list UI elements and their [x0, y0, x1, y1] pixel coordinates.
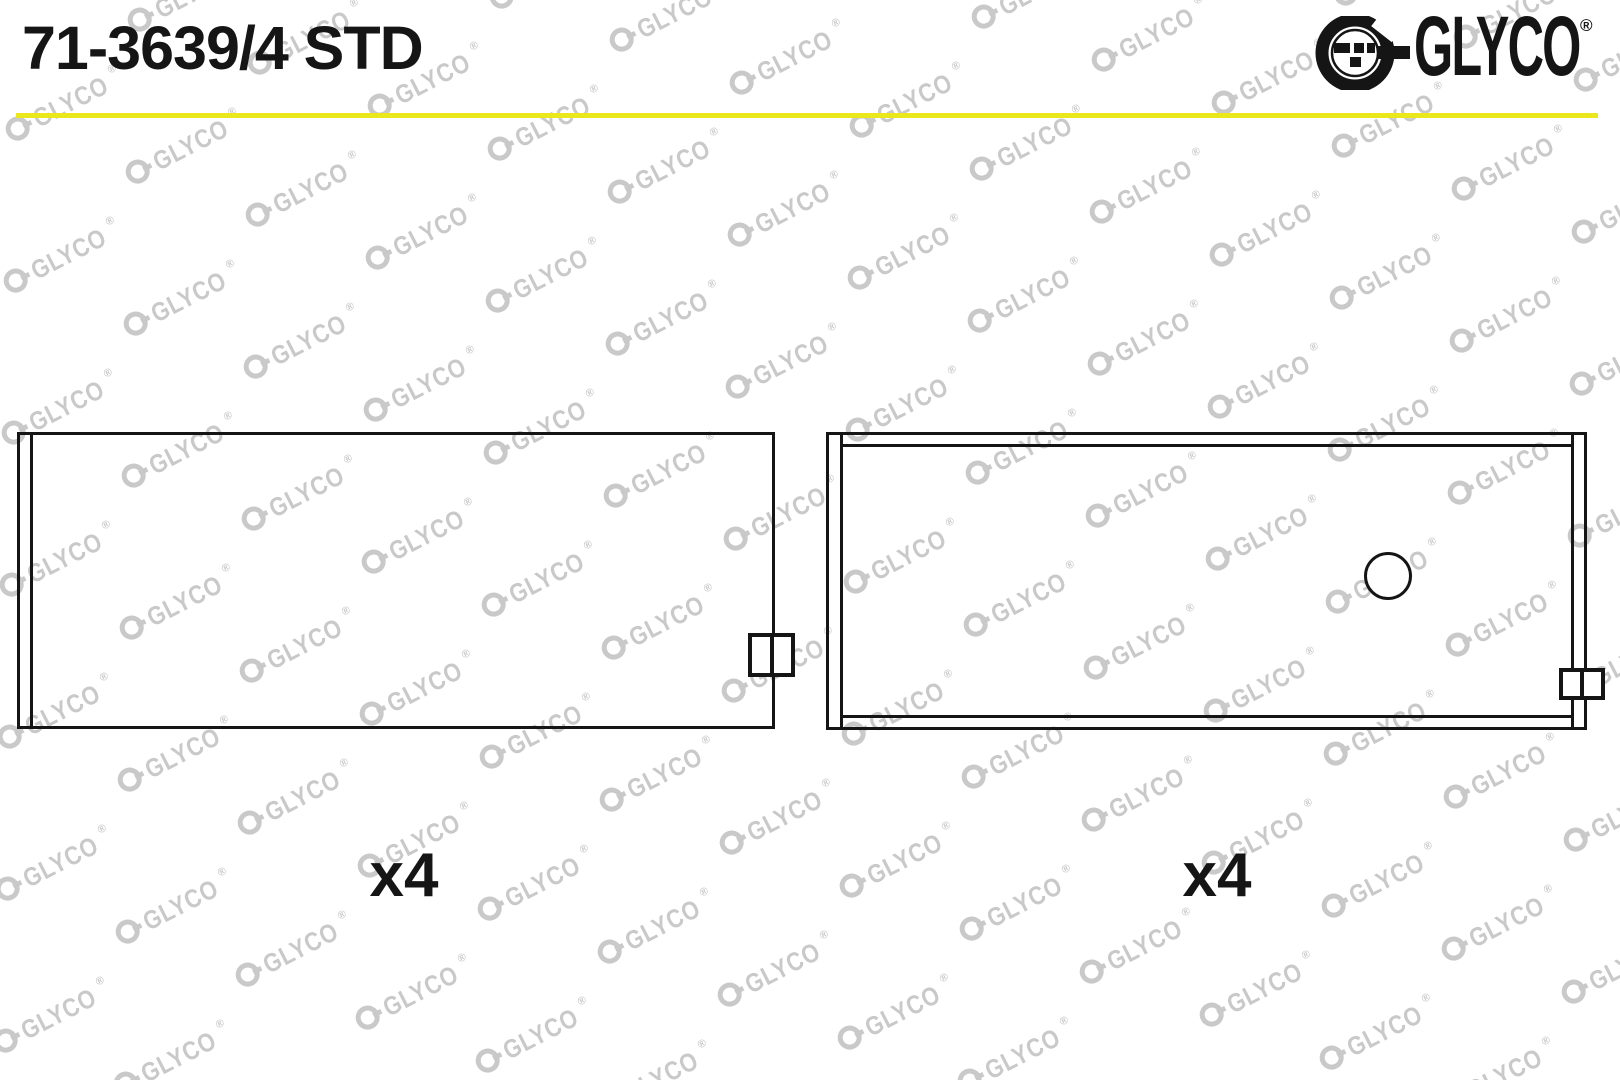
watermark: GLYCO®: [1559, 776, 1620, 857]
glyco-ring-icon: [0, 1024, 22, 1056]
glyco-ring-icon: [606, 23, 638, 55]
glyco-ring-icon: [966, 152, 998, 184]
watermark: GLYCO®: [0, 326, 2, 407]
shell-outline: [17, 432, 775, 729]
glyco-ring-icon: [476, 740, 508, 772]
watermark: GLYCO®: [1203, 343, 1328, 424]
glyco-ring-icon: [486, 0, 518, 13]
watermark: GLYCO®: [845, 62, 970, 143]
glyco-ring-icon: [1084, 347, 1116, 379]
watermark: GLYCO®: [1557, 928, 1620, 1009]
watermark: GLYCO®: [233, 759, 358, 840]
glyco-ring-icon: [0, 872, 24, 904]
glyco-ring-icon: [122, 155, 154, 187]
watermark: GLYCO®: [1447, 125, 1572, 206]
watermark: GLYCO®: [835, 822, 960, 903]
watermark: GLYCO®: [1195, 951, 1320, 1032]
watermark: GLYCO®: [0, 22, 6, 103]
watermark: GLYCO®: [595, 736, 720, 817]
glyco-ring-icon: [1316, 1041, 1348, 1073]
quantity-label: x4: [294, 845, 514, 907]
lug-divider-line: [1580, 672, 1584, 696]
glyco-ring-icon: [1328, 129, 1360, 161]
glyco-ring-icon: [726, 66, 758, 98]
part-number: 71-3639/4 STD: [22, 18, 423, 79]
watermark: GLYCO®: [121, 108, 246, 189]
watermark: GLYCO®: [1327, 82, 1452, 163]
watermark: GLYCO®: [955, 865, 1080, 946]
watermark: GLYCO®: [0, 825, 116, 906]
glyco-ring-icon: [1086, 195, 1118, 227]
glyco-ring-icon: [1440, 780, 1472, 812]
glyco-ring-icon: [1204, 390, 1236, 422]
watermark: GLYCO®: [725, 19, 850, 100]
glyco-ring-icon: [120, 307, 152, 339]
watermark: GLYCO®: [241, 151, 366, 232]
glyco-ring-icon: [1568, 215, 1600, 247]
glyco-ring-icon: [722, 370, 754, 402]
glyco-ring-icon: [362, 241, 394, 273]
glyco-ring-icon: [1558, 975, 1590, 1007]
glyco-ring-icon: [112, 915, 144, 947]
glyco-ring-icon: [232, 958, 264, 990]
glyco-ring-icon: [1566, 367, 1598, 399]
glyco-ring-icon: [1206, 238, 1238, 270]
shell-edge-line: [30, 435, 33, 726]
watermark: GLYCO®: [601, 280, 726, 361]
glyco-ring-icon: [1314, 16, 1410, 90]
watermark: GLYCO®: [0, 217, 124, 298]
glyco-ring-icon: [594, 935, 626, 967]
glyco-ring-icon: [242, 198, 274, 230]
watermark: GLYCO®: [1075, 908, 1200, 989]
watermark: GLYCO®: [485, 0, 610, 14]
glyco-ring-icon: [1330, 0, 1362, 10]
glyco-ring-icon: [1446, 324, 1478, 356]
glyco-ring-icon: [0, 264, 32, 296]
oil-hole: [1364, 552, 1412, 600]
glyco-ring-icon: [234, 806, 266, 838]
glyco-ring-icon: [844, 261, 876, 293]
glyco-ring-icon: [1560, 823, 1592, 855]
glyco-ring-icon: [472, 1044, 504, 1076]
shell-outline: [826, 432, 1587, 730]
watermark: GLYCO®: [963, 257, 1088, 338]
lug-divider-line: [770, 637, 774, 673]
glyco-ring-icon: [604, 175, 636, 207]
glyco-ring-icon: [482, 284, 514, 316]
watermark: GLYCO®: [603, 128, 728, 209]
watermark: GLYCO®: [1435, 1037, 1560, 1080]
glyco-ring-icon: [956, 912, 988, 944]
locating-lug: [748, 633, 795, 677]
watermark: GLYCO®: [833, 974, 958, 1055]
glyco-ring-icon: [110, 1067, 142, 1080]
watermark: GLYCO®: [591, 1040, 716, 1080]
shell-wall-line-bottom: [843, 715, 1571, 718]
glyco-ring-icon: [834, 1021, 866, 1053]
watermark: GLYCO®: [1085, 148, 1210, 229]
watermark: GLYCO®: [481, 237, 606, 318]
watermark: GLYCO®: [967, 0, 1092, 34]
watermark: GLYCO®: [593, 888, 718, 969]
watermark: GLYCO®: [1087, 0, 1212, 77]
glyco-ring-icon: [1196, 998, 1228, 1030]
glyco-ring-icon: [1448, 172, 1480, 204]
watermark: GLYCO®: [1565, 320, 1620, 401]
glyco-ring-icon: [968, 0, 1000, 32]
quantity-label: x4: [1107, 845, 1327, 907]
watermark: GLYCO®: [111, 868, 236, 949]
catalog-page: GLYCO®GLYCO®GLYCO®GLYCO®GLYCO®GLYCO®GLYC…: [0, 0, 1620, 1080]
watermark: GLYCO®: [1567, 168, 1620, 249]
glyco-ring-icon: [484, 132, 516, 164]
watermark: GLYCO®: [605, 0, 730, 57]
glyco-ring-icon: [958, 760, 990, 792]
locating-lug: [1559, 668, 1605, 700]
watermark: GLYCO®: [119, 260, 244, 341]
watermark: GLYCO®: [231, 911, 356, 992]
watermark: GLYCO®: [1077, 756, 1202, 837]
watermark: GLYCO®: [0, 174, 4, 255]
watermark: GLYCO®: [1083, 300, 1208, 381]
watermark: GLYCO®: [1445, 277, 1570, 358]
watermark: GLYCO®: [843, 214, 968, 295]
watermark: GLYCO®: [721, 323, 846, 404]
watermark: GLYCO®: [713, 931, 838, 1012]
glyco-ring-icon: [240, 350, 272, 382]
glyco-ring-icon: [836, 869, 868, 901]
watermark: GLYCO®: [109, 1020, 234, 1080]
glyco-ring-icon: [596, 783, 628, 815]
watermark: GLYCO®: [471, 997, 596, 1078]
glyco-ring-icon: [714, 978, 746, 1010]
watermark: GLYCO®: [483, 85, 608, 166]
glyco-ring-icon: [1088, 43, 1120, 75]
watermark: GLYCO®: [239, 303, 364, 384]
glyco-ring-icon: [724, 218, 756, 250]
glyco-ring-icon: [114, 763, 146, 795]
glyco-ring-icon: [352, 1001, 384, 1033]
watermark: GLYCO®: [1205, 191, 1330, 272]
glyco-ring-icon: [1326, 281, 1358, 313]
brand-name: GLYCO: [1414, 4, 1580, 88]
watermark: GLYCO®: [1325, 234, 1450, 315]
watermark: GLYCO®: [1317, 842, 1442, 923]
watermark: GLYCO®: [359, 346, 484, 427]
glyco-ring-icon: [1076, 955, 1108, 987]
glyco-ring-icon: [1320, 737, 1352, 769]
watermark: GLYCO®: [1437, 885, 1562, 966]
watermark: GLYCO®: [0, 977, 114, 1058]
glyco-ring-icon: [954, 1064, 986, 1080]
glyco-ring-icon: [1438, 932, 1470, 964]
header-rule: [16, 113, 1598, 118]
watermark: GLYCO®: [953, 1017, 1078, 1080]
glyco-ring-icon: [964, 304, 996, 336]
watermark: GLYCO®: [723, 171, 848, 252]
shell-wall-line-left: [840, 435, 843, 727]
glyco-ring-icon: [360, 393, 392, 425]
glyco-ring-icon: [602, 327, 634, 359]
registered-trademark-symbol: ®: [1580, 16, 1593, 36]
watermark: GLYCO®: [351, 954, 476, 1035]
watermark: GLYCO®: [715, 779, 840, 860]
watermark: GLYCO®: [1439, 733, 1564, 814]
shell-wall-line-top: [843, 444, 1571, 447]
glyco-ring-icon: [1078, 803, 1110, 835]
watermark: GLYCO®: [1315, 994, 1440, 1075]
glyco-ring-icon: [716, 826, 748, 858]
watermark: GLYCO®: [361, 194, 486, 275]
